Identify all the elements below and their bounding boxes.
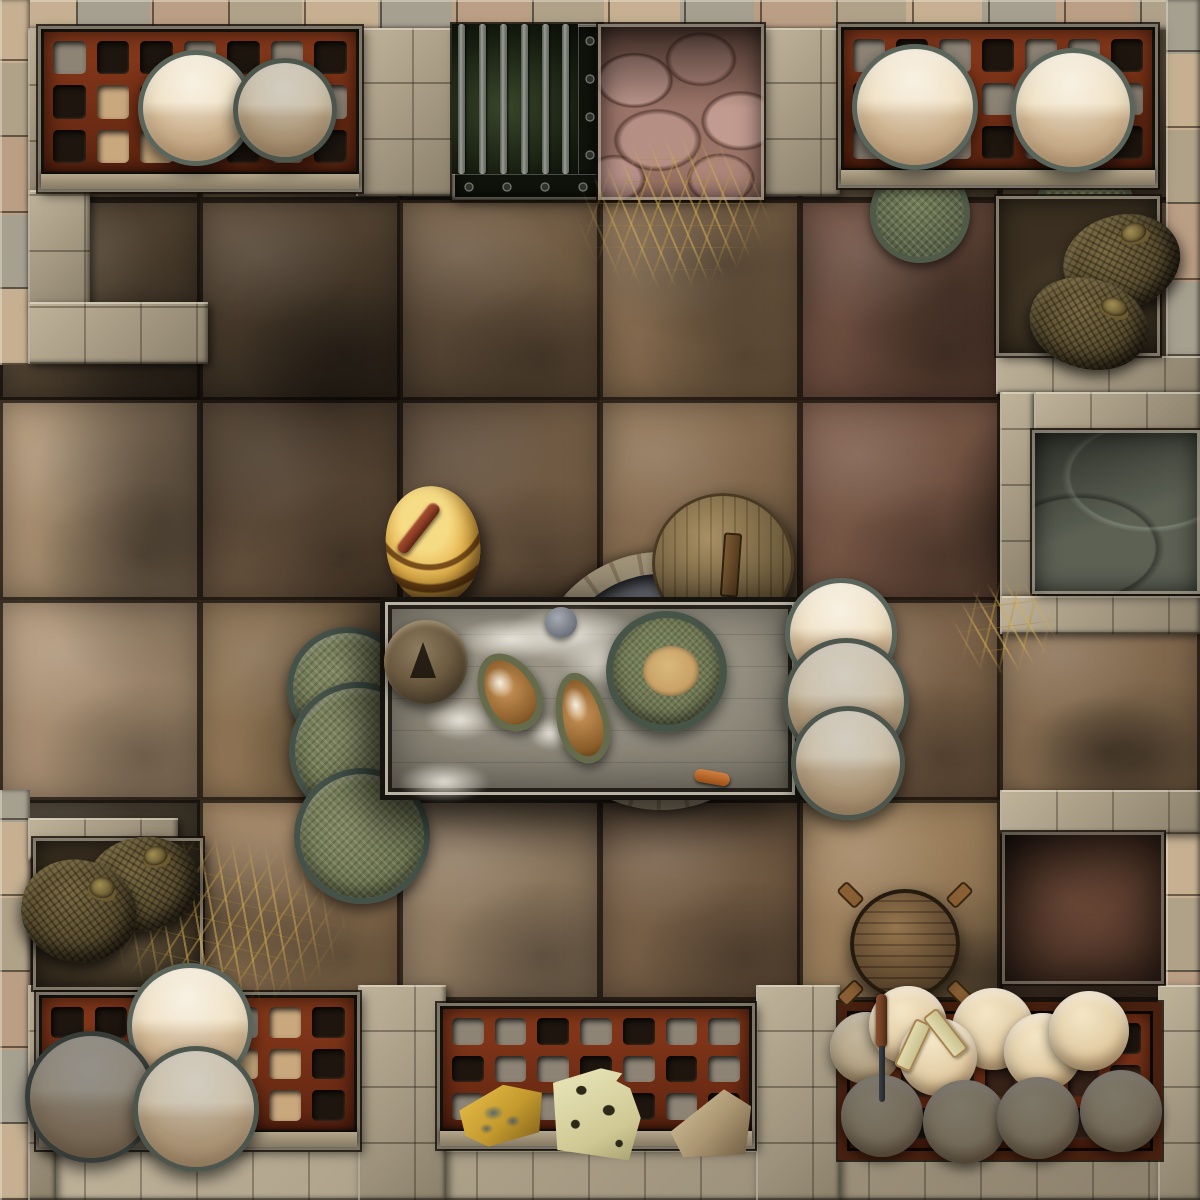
cut-face [922,1007,968,1059]
dungeon-map [0,0,1200,1200]
cut-cheese-wheel-wedge [888,1000,974,1076]
cut-face [894,1018,932,1073]
cheese-wheel [1080,1070,1162,1152]
cheese-knife-blade [879,1046,885,1102]
cheese-knife-handle [876,994,887,1048]
cheese-wheel [1049,991,1129,1071]
cheese-wheel [997,1077,1079,1159]
cheese-wheel [923,1080,1007,1164]
cheese-wheel-pile [0,0,1200,1200]
